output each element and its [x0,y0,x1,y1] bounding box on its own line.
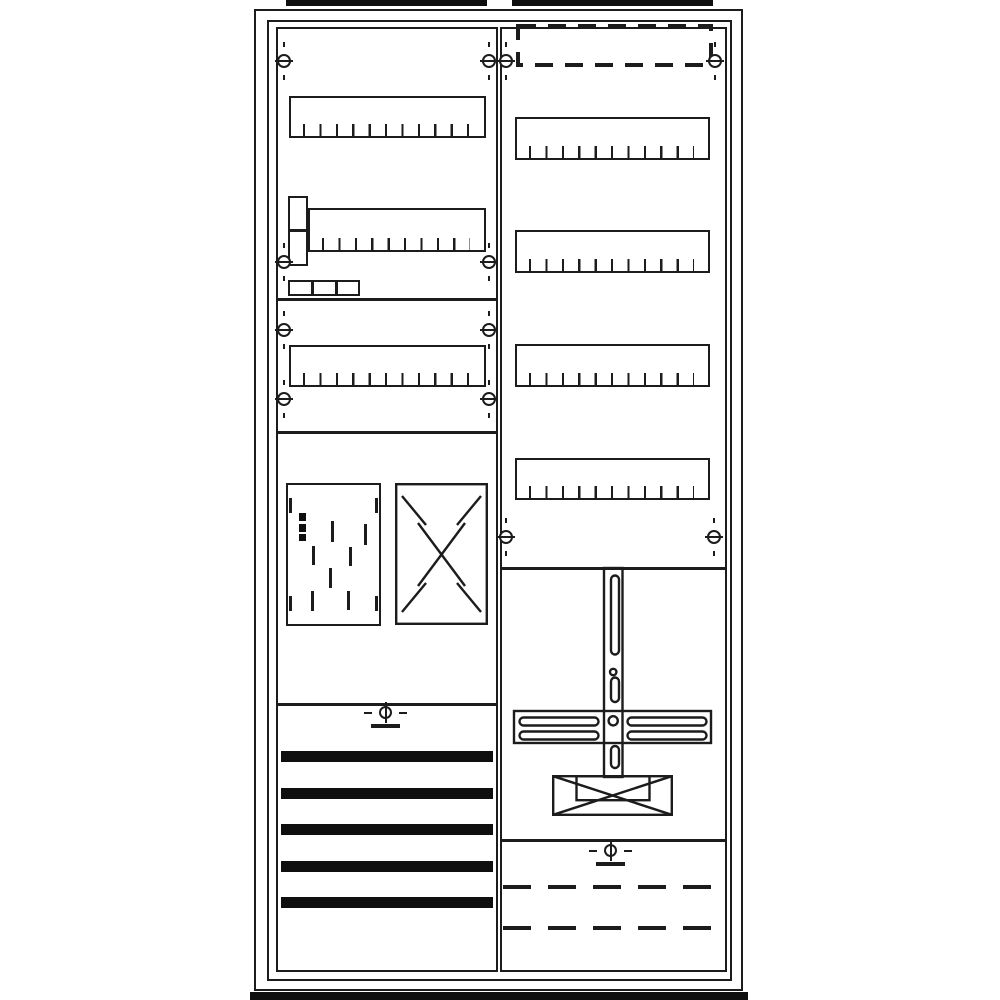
module-division-ticks [303,373,470,385]
earth-bar [371,724,400,728]
terminal-box-crossed [552,775,673,816]
din-rail-row [515,117,710,160]
screw-centerline-dash [505,75,507,80]
screw-centerline-dash [488,380,490,385]
fixing-screw-icon [705,42,725,80]
din-rail-row [289,345,486,387]
screw-centerline-dash [283,276,285,281]
screw-centerline-dash [714,42,716,47]
din-rail-row [289,96,486,138]
meter-corner-mark [289,498,292,513]
meter-display-dash [329,568,332,588]
screw-centerline-dash [488,243,490,248]
bottom-mounting-flange [250,992,748,1000]
row-end-module-divider [290,229,306,232]
fixing-screw-icon [274,243,294,281]
fixing-screw-icon [496,518,516,556]
screw-centerline-dash [505,551,507,556]
meter-corner-mark [375,596,378,611]
cable-entry-dashed-outline [516,24,714,68]
earth-symbol-right [589,838,632,866]
screw-slot [275,261,293,263]
busbar [281,897,493,908]
screw-slot [275,60,293,62]
screw-centerline-dash [488,75,490,80]
screw-centerline-dash [283,413,285,418]
meter-display-dash [349,547,352,566]
top-mounting-flange-left [286,0,487,6]
screw-centerline-dash [488,311,490,316]
meter-barcode-block [299,534,306,541]
earth-side-dash [364,712,372,715]
earth-side-dash [624,850,632,853]
module-division-ticks [529,373,694,385]
din-rail-row [308,208,486,252]
meter-display-dash [331,521,334,542]
busbar [281,824,493,835]
screw-centerline-dash [488,276,490,281]
meter-display-dash [347,591,350,610]
module-group-divider [335,282,338,294]
meter-display-dash [312,546,315,565]
screw-slot [705,536,723,538]
module-division-ticks [529,146,694,158]
screw-centerline-dash [283,42,285,47]
meter-cabinet-drawing [0,0,1000,1000]
screw-centerline-dash [283,380,285,385]
earth-terminal-slot [610,840,613,861]
module-division-ticks [322,238,470,250]
left-field-divider-1 [278,298,496,301]
screw-centerline-dash [488,344,490,349]
screw-centerline-dash [505,518,507,523]
busbar [281,788,493,799]
wiring-space-dashed-line [503,885,724,889]
screw-centerline-dash [283,344,285,349]
meter-window [286,483,381,626]
module-division-ticks [303,124,470,136]
wiring-space-dashed-line [503,926,724,930]
screw-slot [480,398,498,400]
module-group-divider [311,282,314,294]
earth-bar [596,862,625,866]
fixing-screw-icon [274,42,294,80]
earth-symbol-left [364,700,407,728]
module-division-ticks [529,486,694,498]
module-division-ticks [529,259,694,271]
fixing-screw-icon [274,311,294,349]
earth-side-dash [589,850,597,853]
screw-centerline-dash [714,75,716,80]
busbar [281,861,493,872]
screw-centerline-dash [488,42,490,47]
screw-centerline-dash [713,518,715,523]
meter-corner-mark [375,498,378,513]
screw-slot [480,261,498,263]
din-rail-row [515,458,710,500]
din-rail-row [515,230,710,273]
screw-centerline-dash [283,311,285,316]
screw-slot [275,329,293,331]
screw-slot [275,398,293,400]
screw-slot [480,329,498,331]
fixing-screw-icon [704,518,724,556]
screw-centerline-dash [505,42,507,47]
screw-centerline-dash [488,413,490,418]
meter-display-dash [311,591,314,611]
screw-slot [497,60,515,62]
earth-side-dash [399,712,407,715]
screw-slot [706,60,724,62]
busbar [281,751,493,762]
meter-barcode-block [299,524,306,532]
earth-terminal-slot [385,702,388,723]
meter-corner-mark [289,596,292,611]
fixing-screw-icon [479,311,499,349]
screw-centerline-dash [283,75,285,80]
screw-slot [497,536,515,538]
fixing-screw-icon [496,42,516,80]
top-mounting-flange-right [512,0,713,6]
meter-display-dash [364,524,367,545]
left-field-divider-2 [278,431,496,434]
reserve-window-crossed [395,483,488,625]
screw-centerline-dash [283,243,285,248]
din-rail-row [515,344,710,387]
meter-barcode-block [299,513,306,521]
screw-centerline-dash [713,551,715,556]
module-group-box [288,280,360,296]
